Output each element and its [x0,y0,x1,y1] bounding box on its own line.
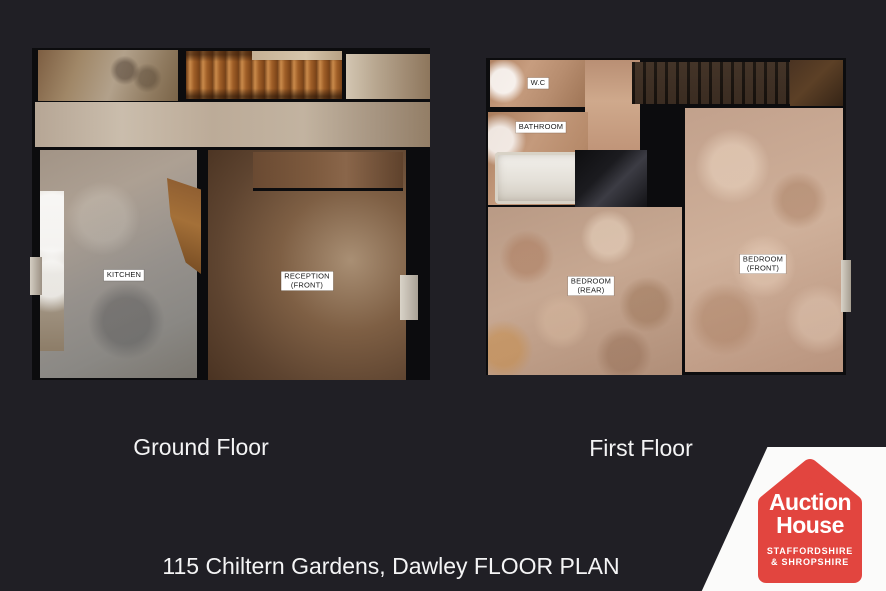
kitchen-cabinet [167,178,201,274]
room-label-reception: RECEPTION (FRONT) [281,272,333,291]
auction-house-logo-text: Auction House STAFFORDSHIRE & SHROPSHIRE [758,458,862,584]
stairs-landing-strip [252,51,342,60]
room-label-bedroom-front: BEDROOM (FRONT) [740,255,786,274]
room-label-bathroom: BATHROOM [516,122,566,133]
ground-floor-title: Ground Floor [91,434,311,461]
first-floor-stairwell-top [790,60,843,106]
first-floor-plan [485,55,848,377]
bathtub [495,152,583,204]
logo-line-house: House [776,514,844,537]
auction-house-logo: Auction House STAFFORDSHIRE & SHROPSHIRE [690,444,886,591]
kitchen-room [40,150,197,378]
kitchen-counter [40,191,64,351]
reception-window-sill [400,275,418,320]
ground-floor-top-hall [346,54,430,99]
ground-floor-hallway [35,102,430,147]
logo-line-staffordshire: STAFFORDSHIRE [767,546,853,557]
room-label-wc: W.C [528,78,549,89]
first-floor-stairs [632,62,790,104]
floorplan-image: KITCHEN RECEPTION (FRONT) W.C BATHROOM B… [0,0,886,591]
first-floor-title: First Floor [531,435,751,462]
utility-room-area [38,50,178,101]
property-address-caption: 115 Chiltern Gardens, Dawley FLOOR PLAN [0,553,782,580]
room-label-kitchen: KITCHEN [104,270,144,281]
kitchen-window-sill [30,257,42,295]
stairwell-void [575,150,647,210]
reception-bay-window [253,152,403,191]
bedroom-front-window-sill [841,260,851,312]
auction-house-house-icon: Auction House STAFFORDSHIRE & SHROPSHIRE [758,458,862,584]
bedroom-front-room [685,108,843,372]
room-label-bedroom-rear: BEDROOM (REAR) [568,277,614,296]
ground-floor-stairs [186,51,342,99]
logo-line-shropshire: & SHROPSHIRE [771,557,849,568]
ground-floor-plan [30,42,432,382]
logo-line-auction: Auction [769,491,851,514]
